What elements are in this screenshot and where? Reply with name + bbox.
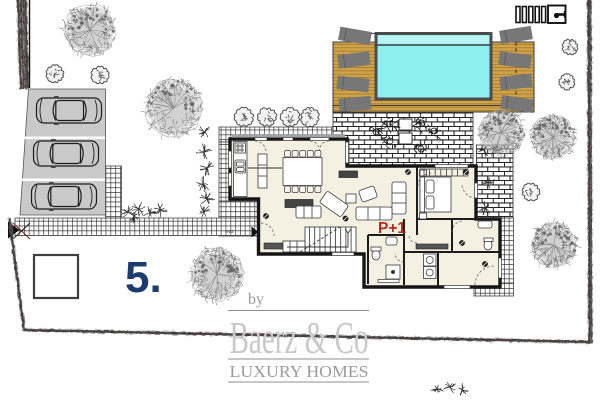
svg-text:LUXURY HOMES: LUXURY HOMES: [230, 362, 369, 381]
svg-text:P+1: P+1: [378, 220, 406, 237]
svg-text:Baerz & Co: Baerz & Co: [230, 312, 369, 363]
svg-text:by: by: [248, 291, 264, 308]
svg-text:vez: vez: [226, 229, 234, 235]
svg-text:5.: 5.: [125, 253, 162, 302]
